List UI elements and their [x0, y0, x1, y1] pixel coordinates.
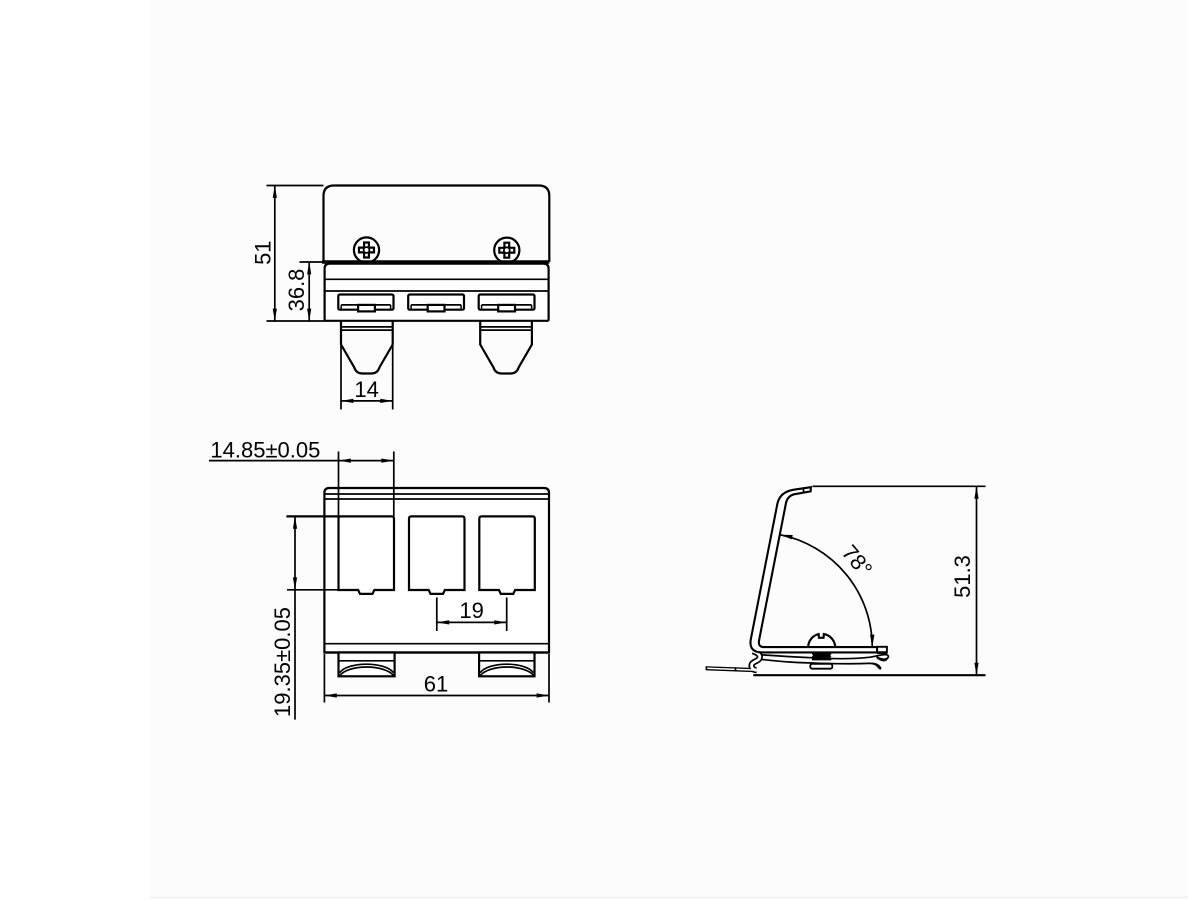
svg-text:51.3: 51.3 — [950, 555, 975, 598]
svg-text:19: 19 — [459, 598, 483, 623]
svg-text:14.85±0.05: 14.85±0.05 — [210, 438, 320, 463]
svg-text:19.35±0.05: 19.35±0.05 — [270, 607, 295, 717]
svg-text:36.8: 36.8 — [284, 269, 309, 312]
svg-text:61: 61 — [424, 672, 448, 697]
svg-text:14: 14 — [354, 377, 378, 402]
svg-text:51: 51 — [251, 240, 276, 264]
